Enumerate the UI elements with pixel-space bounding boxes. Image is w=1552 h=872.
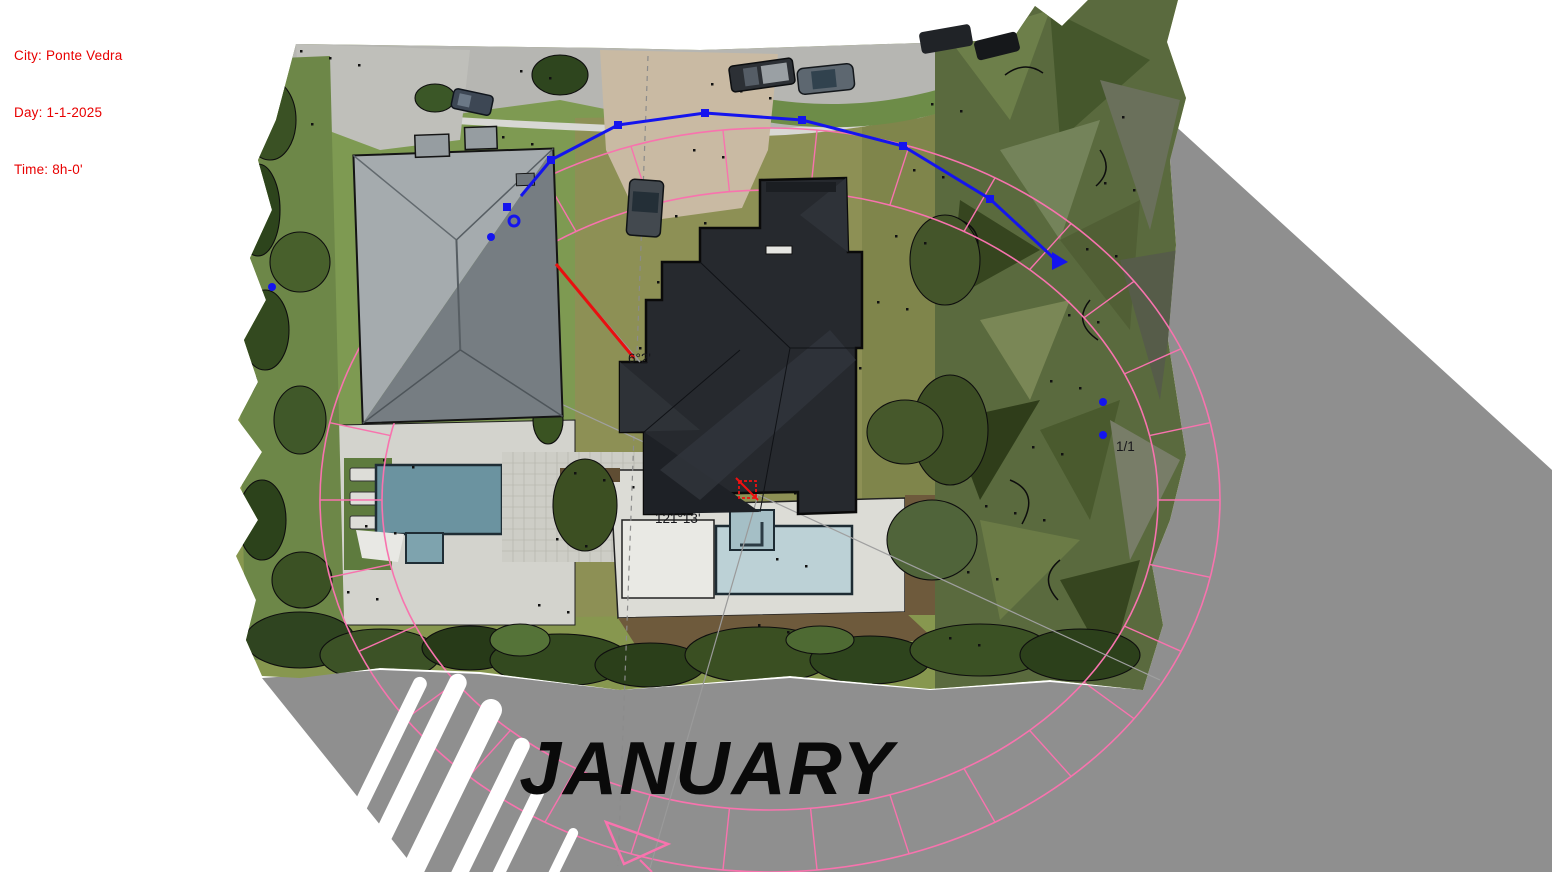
dormer — [415, 134, 450, 157]
driveway-car — [626, 179, 664, 237]
neighbor-house — [353, 125, 563, 424]
sun-path-node — [701, 109, 709, 117]
right-veg — [935, 0, 1186, 690]
sun-path-node — [268, 283, 276, 291]
month-label: JANUARY — [519, 726, 898, 810]
info-time-line: Time: 8h-0' — [14, 160, 122, 179]
sun-date-label: 1/1 — [1116, 439, 1135, 454]
sun-altitude-label: 6°2' — [628, 351, 651, 366]
sun-path-node — [547, 156, 555, 164]
sun-path-node — [1099, 398, 1107, 406]
sun-path-node — [899, 142, 907, 150]
shadow-study-info: City: Ponte Vedra Day: 1-1-2025 Time: 8h… — [14, 8, 122, 198]
shrub — [910, 215, 980, 305]
info-city-line: City: Ponte Vedra — [14, 46, 122, 65]
cabana-roof — [622, 520, 714, 598]
waterfall-rocks — [356, 530, 404, 562]
garage-edge — [766, 182, 836, 192]
sun-azimuth-label: 121°13' — [655, 511, 701, 526]
dormer — [465, 126, 498, 149]
info-day-line: Day: 1-1-2025 — [14, 103, 122, 122]
model-scene-canvas: 6°2' 121°13' 1/1 JANUARY — [0, 0, 1552, 872]
sun-path-node — [1099, 431, 1107, 439]
roof-vent — [766, 246, 792, 254]
sketchup-viewport[interactable]: 6°2' 121°13' 1/1 JANUARY City: Ponte Ved… — [0, 0, 1552, 872]
sun-path-node — [986, 195, 994, 203]
sun-path-node — [503, 203, 511, 211]
sun-path-node — [614, 121, 622, 129]
sun-path-node — [798, 116, 806, 124]
shrub — [887, 500, 977, 580]
sedan — [797, 63, 855, 95]
left-spa — [406, 533, 443, 563]
sun-path-node — [487, 233, 495, 241]
left-pool — [376, 465, 502, 534]
